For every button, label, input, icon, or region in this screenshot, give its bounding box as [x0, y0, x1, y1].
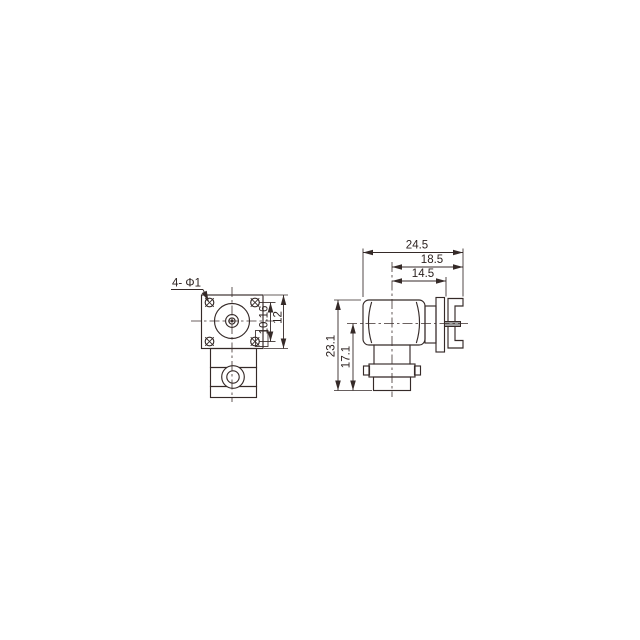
- mounting-hole-top-left: [205, 298, 214, 307]
- mounting-hole-bottom-left: [205, 337, 214, 346]
- hex-body-outline: [363, 300, 425, 345]
- coupling-ring-outline: [222, 366, 245, 389]
- dimension-overall-height: 23.1: [326, 300, 373, 391]
- insulator-bushing: [425, 306, 436, 343]
- dimension-center-to-pin-tip: 18.5: [392, 254, 463, 267]
- side-view-dimensions: 24.5 18.5 14.5 23.1 17.1: [326, 240, 464, 391]
- dimension-center-to-plate: 14.5: [392, 268, 446, 297]
- dim-label-center-to-pin-tip: 18.5: [421, 254, 443, 266]
- hole-callout-label: 4- Φ1: [172, 278, 201, 290]
- connector-technical-drawing: 4- Φ1 10.16 12: [0, 0, 640, 640]
- mounting-hole-top-right: [251, 298, 260, 307]
- hex-facet-arc-left: [369, 303, 372, 343]
- dim-label-flange-size: 12: [273, 311, 285, 324]
- drawing-canvas: 4- Φ1 10.16 12: [0, 0, 640, 640]
- dim-label-center-to-plate: 14.5: [412, 268, 434, 280]
- dim-label-axis-to-bottom: 17.1: [341, 346, 353, 368]
- center-pin: [445, 322, 461, 327]
- mounting-hole-bottom-right: [251, 337, 260, 346]
- hex-facet-arc-right: [417, 303, 420, 343]
- mount-plate: [436, 298, 445, 353]
- dimension-hole-callout: 4- Φ1: [171, 278, 209, 302]
- front-view: [191, 287, 273, 402]
- dim-label-overall-width: 24.5: [406, 240, 428, 252]
- side-view: [347, 262, 468, 397]
- dimension-axis-to-bottom: 17.1: [341, 324, 354, 391]
- dim-label-hole-spacing: 10.16: [259, 306, 271, 335]
- dim-label-overall-height: 23.1: [326, 335, 338, 357]
